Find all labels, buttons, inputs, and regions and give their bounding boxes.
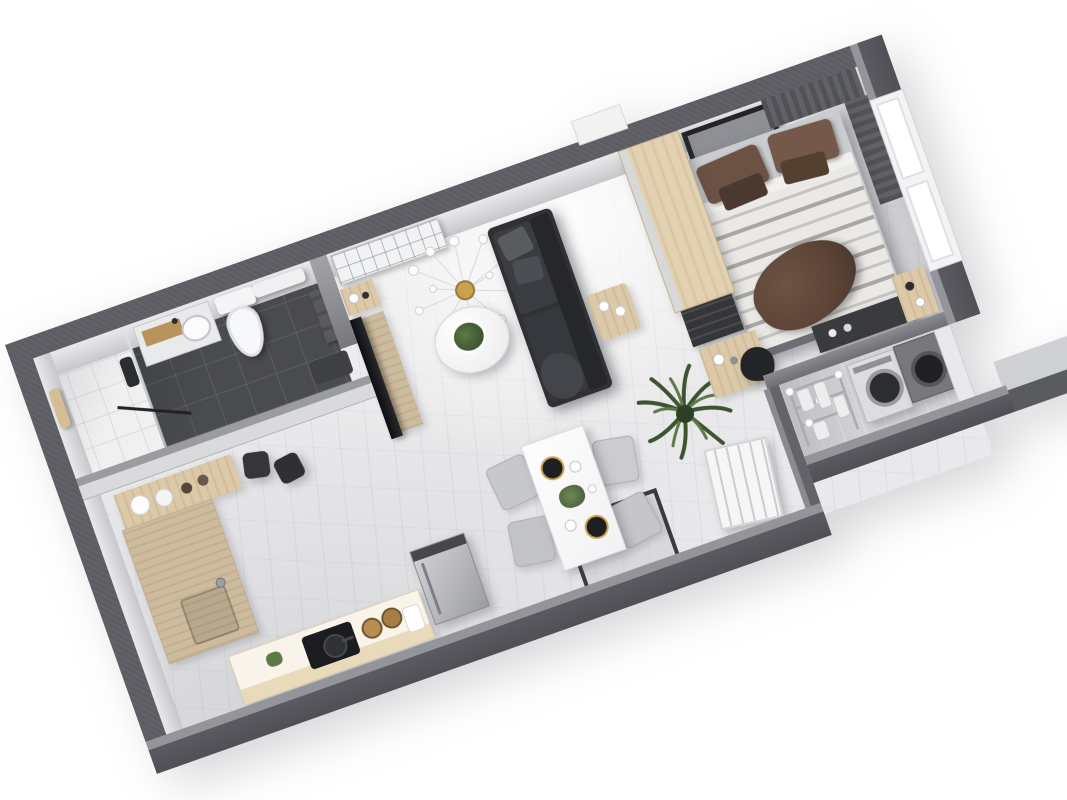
desk-decor bbox=[729, 355, 739, 365]
wardrobe bbox=[618, 130, 736, 313]
floorplan-render bbox=[0, 0, 1067, 800]
wardrobe-door-edge bbox=[619, 149, 683, 312]
desk-decor bbox=[711, 352, 726, 367]
divider-zone bbox=[5, 35, 1034, 774]
apartment-plan bbox=[5, 35, 1034, 774]
